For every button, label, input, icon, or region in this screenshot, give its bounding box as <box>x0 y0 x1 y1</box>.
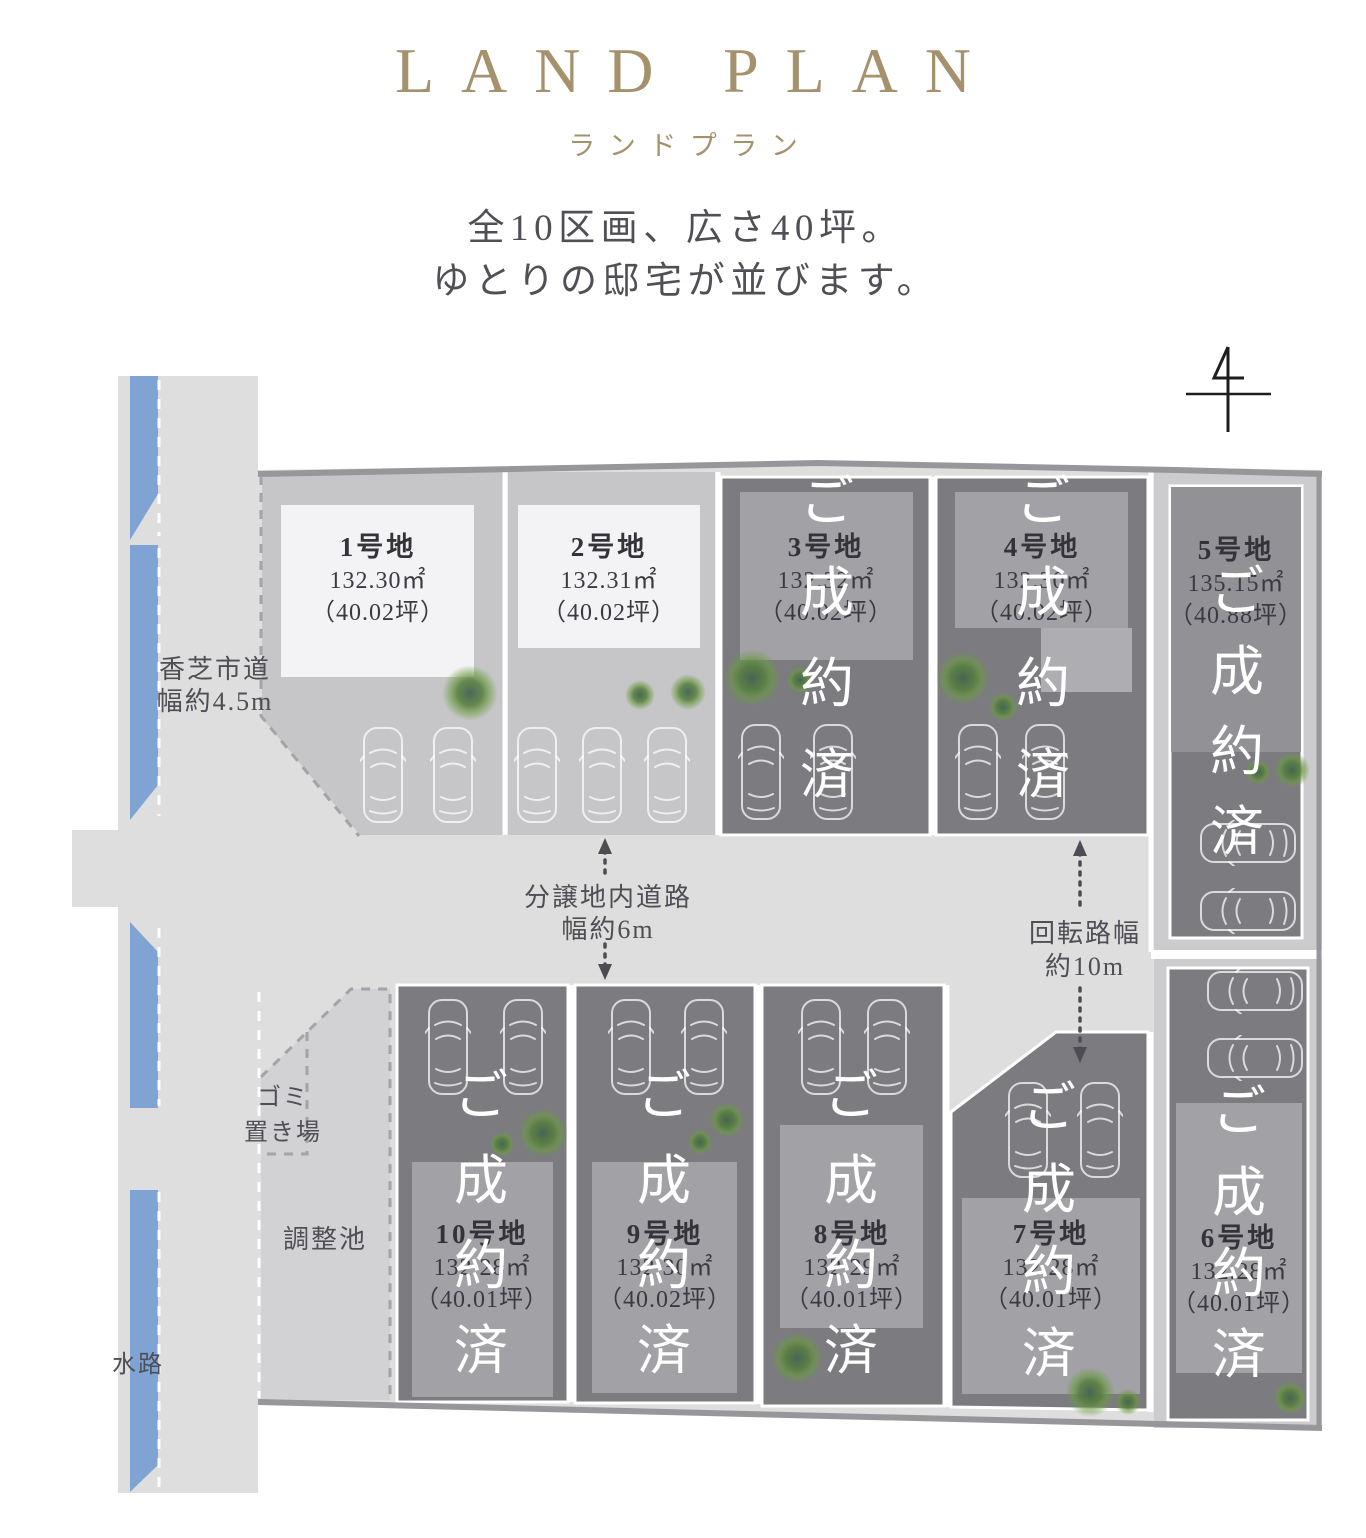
turning-road-label-line2: 約10m <box>1045 952 1125 981</box>
city-road-label-line2: 幅約4.5m <box>157 687 274 716</box>
north-arrow-icon <box>1186 347 1271 432</box>
tree-icon <box>518 1108 568 1158</box>
tree-icon <box>442 665 498 721</box>
retention-pond-label: 調整池 <box>283 1225 367 1254</box>
water-strip <box>130 545 158 820</box>
tagline-line2: ゆとりの邸宅が並びます。 <box>6 256 1366 309</box>
lot-3-name: 3号地 <box>788 532 865 562</box>
lot-2 <box>508 472 715 835</box>
tree-icon <box>936 651 990 705</box>
lot-2-tsubo: （40.02坪） <box>542 599 676 626</box>
tree-icon <box>670 674 706 710</box>
tree-icon <box>988 692 1018 722</box>
turning-road-label-line1: 回転路幅 <box>1029 919 1141 948</box>
lot-4-name: 4号地 <box>1004 532 1081 562</box>
lot-2-name: 2号地 <box>571 532 648 562</box>
lot-1-name: 1号地 <box>340 532 417 562</box>
tree-icon <box>709 1102 745 1138</box>
tree-icon <box>1274 752 1310 788</box>
lot-1-area: 132.30㎡ <box>330 567 427 594</box>
tree-icon <box>1115 1389 1141 1415</box>
garbage-label-line1: ゴミ <box>257 1084 309 1111</box>
internal-road-label-line1: 分譲地内道路 <box>524 883 692 912</box>
lot-1-tsubo: （40.02坪） <box>311 599 445 626</box>
tree-icon <box>625 680 655 710</box>
water-strip <box>130 1190 158 1492</box>
tree-icon <box>1273 1381 1307 1415</box>
tree-icon <box>771 1332 823 1384</box>
lot-5-name: 5号地 <box>1198 535 1275 565</box>
tagline: 全10区画、広さ40坪。 ゆとりの邸宅が並びます。 <box>6 203 1366 308</box>
page-header: LAND PLAN ランドプラン 全10区画、広さ40坪。 ゆとりの邸宅が並びま… <box>0 34 1366 308</box>
page-subtitle: ランドプラン <box>14 124 1366 163</box>
side-road-stub <box>72 830 118 907</box>
internal-road-label-line2: 幅約6m <box>561 915 654 944</box>
city-road-label-line1: 香芝市道 <box>159 655 271 684</box>
waterway-label: 水路 <box>112 1351 164 1378</box>
lot-2-area: 132.31㎡ <box>561 567 658 594</box>
tagline-line1: 全10区画、広さ40坪。 <box>6 203 1366 256</box>
page-title: LAND PLAN <box>27 34 1366 108</box>
land-plan-page: LAND PLAN ランドプラン 全10区画、広さ40坪。 ゆとりの邸宅が並びま… <box>0 0 1366 1538</box>
water-strip <box>130 922 158 1108</box>
tree-icon <box>723 649 781 707</box>
garbage-label-line2: 置き場 <box>244 1119 322 1146</box>
